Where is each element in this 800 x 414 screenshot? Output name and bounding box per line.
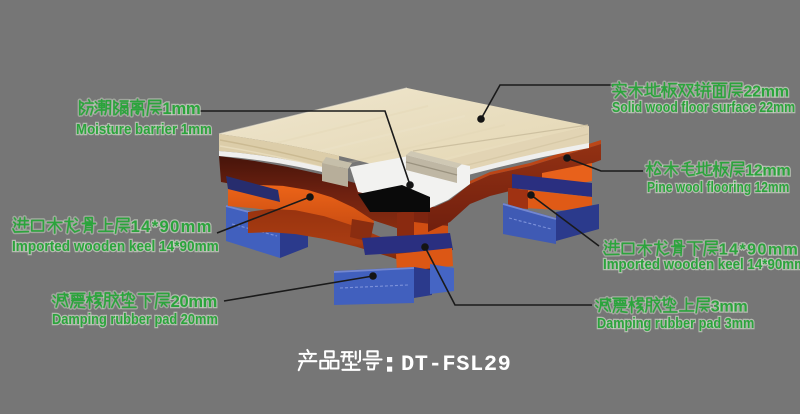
svg-text:Pine wool flooring 12mm: Pine wool flooring 12mm [647,179,789,195]
svg-text:1mm: 1mm [162,99,200,118]
svg-text:Moisture barrier 1mm: Moisture barrier 1mm [76,121,212,138]
svg-text:3mm: 3mm [711,298,748,316]
svg-text:DT-FSL29: DT-FSL29 [401,352,511,377]
svg-text:14*90mm: 14*90mm [131,218,213,236]
svg-text:Imported wooden keel 14*90mm: Imported wooden keel 14*90mm [12,238,219,255]
svg-text:20mm: 20mm [171,293,217,311]
svg-text:Imported wooden keel 14*90mm: Imported wooden keel 14*90mm [603,255,800,272]
svg-text:Solid wood floor surface 22mm: Solid wood floor surface 22mm [612,99,795,115]
svg-text:Damping rubber pad 3mm: Damping rubber pad 3mm [597,315,754,331]
svg-text:22mm: 22mm [743,83,788,101]
svg-text:12mm: 12mm [745,162,790,180]
svg-text:Damping rubber pad 20mm: Damping rubber pad 20mm [52,310,218,327]
